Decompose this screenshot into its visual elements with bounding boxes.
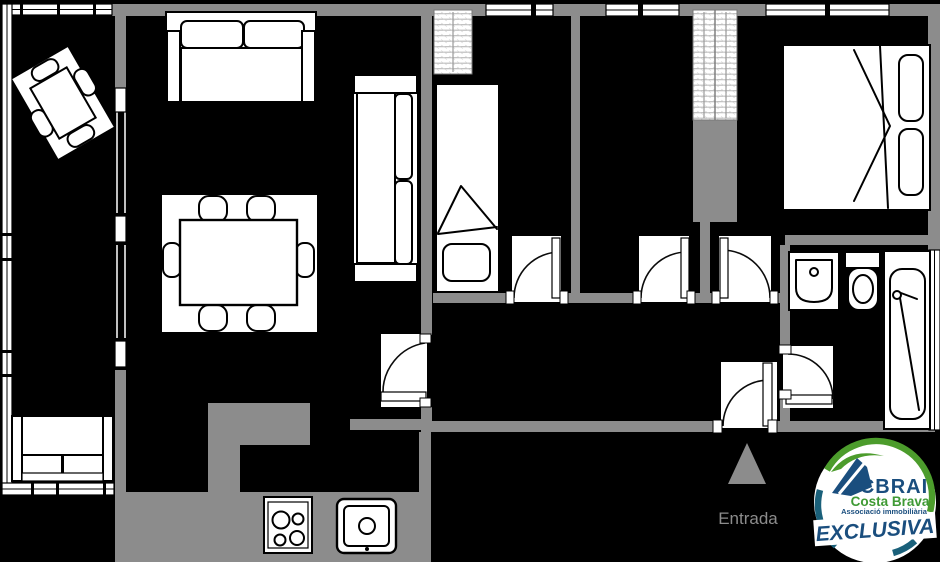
terrace-top-window [2,4,112,15]
bed-pillow [443,244,490,281]
door-leaf [681,238,689,298]
door-leaf [381,392,426,401]
sofa-armrest [354,264,417,282]
sofa-back-cushion [244,21,304,48]
terrace-divider-glazing [115,88,126,370]
bedroom2-door [633,236,695,304]
bedroom-1 [434,10,499,292]
dining-table [180,220,297,305]
floor-plan-canvas: Entrada CBRAI Costa Brava Associació imm… [0,0,940,562]
wall-living-hall [421,10,432,335]
toilet [845,252,880,310]
sofa-cushion [63,455,103,474]
door-leaf [763,363,772,426]
terrace-bottom-window [2,483,114,495]
sofa-armrest [302,31,315,102]
dining-chair [247,305,275,331]
bathroom-sink [789,252,839,310]
wall-hall-seg3 [695,293,712,303]
sofa-back-cushion [181,21,243,48]
bathroom-door [779,345,833,408]
entrance-label: Entrada [718,509,778,528]
living-room [162,12,418,332]
dining-area [162,195,317,332]
entrance-arrow-icon [728,443,766,484]
sink-tap [365,547,369,551]
wall-bedroom1-bedroom2 [571,10,580,295]
cooktop [264,497,312,553]
sofa-two-seat [166,12,316,104]
bedroom1-window [486,4,553,16]
floor-plan: Entrada CBRAI Costa Brava Associació imm… [0,0,940,562]
agency-logo: CBRAI Costa Brava Associació immobiliàri… [813,441,937,562]
sofa-back-cushion [395,181,412,264]
terrace-left-window [2,4,12,494]
master-bedroom-window [766,4,889,16]
sofa-back [22,416,103,457]
sofa-rail [22,473,103,481]
wall-hall-seg1 [433,293,506,303]
wardrobe [434,10,472,74]
bathtub-shower [884,251,930,429]
door-leaf [552,238,560,298]
terrace-dining-set [9,45,118,161]
kitchen-counter-band [208,403,310,445]
sofa-armrest [354,75,417,93]
living-hall-door [381,334,431,407]
door-leaf [786,395,832,404]
dining-chair [199,196,227,222]
terrace-sofa [12,416,113,481]
sofa-cushion [22,455,62,474]
kitchen-sink [337,499,396,553]
bedroom1-door [506,236,568,304]
dining-chair [296,243,314,277]
logo-association-text: Associació immobiliària [841,507,928,516]
entrance-marker: Entrada [718,443,778,528]
dining-chair [163,243,181,277]
sofa-armrest [103,416,113,481]
kitchen-counter-strip [208,445,240,493]
bedroom2-window [606,4,679,16]
door-leaf [720,238,728,298]
single-bed [436,84,499,292]
wall-bathroom-top [785,235,930,245]
terrace [9,45,118,481]
dining-chair [247,196,275,222]
sofa-armrest [167,31,180,102]
wall-bottom-left [350,419,422,430]
wall-bedroom2-master [700,222,710,295]
dining-chair [199,305,227,331]
wall-hall-seg2 [568,293,633,303]
bed-pillow [899,55,923,121]
wall-kitchen-right [419,432,431,562]
double-bed [783,45,930,210]
toilet-tank [845,252,880,268]
sofa-side [353,74,418,283]
wall-terrace-divider-upper [115,10,126,90]
master-door [712,236,778,304]
sofa-armrest [12,416,22,481]
wall-bottom-main [430,421,713,432]
sofa-back-cushion [395,94,412,179]
wardrobe-double [693,10,737,120]
sofa-seat [181,48,315,102]
entrance-door [713,362,777,433]
sofa-seat [357,93,395,263]
wall-wardrobe-block [693,120,737,222]
bed-pillow [899,129,923,195]
